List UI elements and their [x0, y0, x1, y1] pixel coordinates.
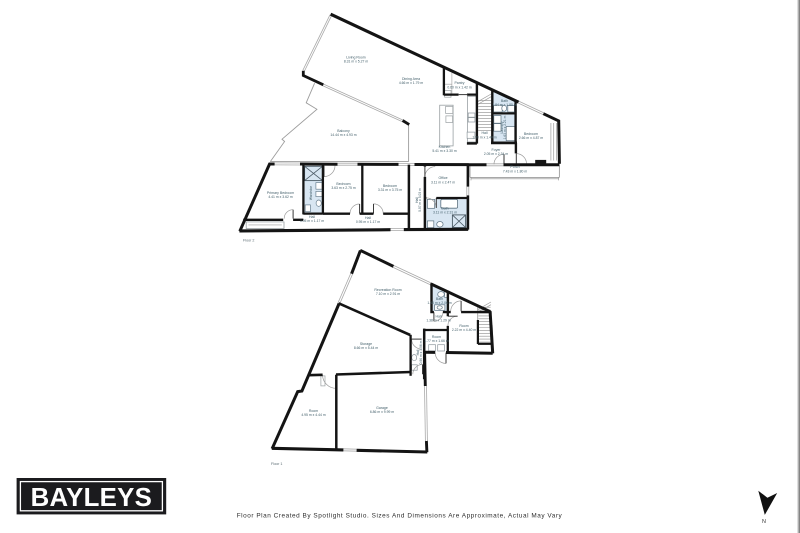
svg-text:8.31 m x 5.27 m: 8.31 m x 5.27 m [344, 60, 368, 64]
svg-text:3.11 m x 2.31 m: 3.11 m x 2.31 m [433, 211, 457, 215]
svg-text:3.05 m x 1.17 m: 3.05 m x 1.17 m [300, 219, 324, 223]
svg-text:3.31 m x 3.75 m: 3.31 m x 3.75 m [378, 188, 402, 192]
svg-text:14.44 m x 4.93 m: 14.44 m x 4.93 m [330, 133, 356, 137]
svg-text:2.66 m x 4.87 m: 2.66 m x 4.87 m [519, 136, 543, 140]
svg-text:1.77 m x 1.66 m: 1.77 m x 1.66 m [424, 339, 448, 343]
svg-text:8.66 m x 5.44 m: 8.66 m x 5.44 m [354, 346, 378, 350]
svg-text:1.84 m x 1.85 m: 1.84 m x 1.85 m [492, 103, 516, 107]
svg-text:3.11 m x 2.47 m: 3.11 m x 2.47 m [431, 180, 455, 184]
svg-text:N: N [762, 519, 766, 525]
svg-text:2.22 m x 4.40 m: 2.22 m x 4.40 m [452, 328, 476, 332]
svg-text:2.05 m x 2.34 m: 2.05 m x 2.34 m [484, 152, 508, 156]
svg-text:3.63 m x 2.75 m: 3.63 m x 2.75 m [331, 186, 355, 190]
svg-text:5.41 m x 3.30 m: 5.41 m x 3.30 m [432, 149, 456, 153]
svg-text:1.50 m x 1.44 m: 1.50 m x 1.44 m [472, 135, 496, 139]
svg-text:1.38 m x 1.29 m: 1.38 m x 1.29 m [426, 319, 450, 323]
svg-text:Wardrobe: Wardrobe [309, 186, 313, 201]
svg-text:4.95 m x 4.44 m: 4.95 m x 4.44 m [301, 413, 325, 417]
svg-text:7.10 m x 2.91 m: 7.10 m x 2.91 m [376, 292, 400, 296]
svg-text:0.96 m x 3.96 m: 0.96 m x 3.96 m [419, 340, 423, 364]
svg-text:Floor 2: Floor 2 [243, 239, 254, 243]
svg-text:4.66 m x 1.79 m: 4.66 m x 1.79 m [399, 81, 423, 85]
svg-text:1.48 m x 2.06 m: 1.48 m x 2.06 m [427, 301, 451, 305]
svg-text:0.95 m x 1.17 m: 0.95 m x 1.17 m [356, 220, 380, 224]
svg-text:0.60 m x 1.42 m: 0.60 m x 1.42 m [447, 85, 471, 89]
svg-text:4.41 m x 3.62 m: 4.41 m x 3.62 m [268, 195, 292, 199]
svg-text:BAYLEYS: BAYLEYS [31, 484, 153, 512]
svg-text:Floor Plan Created By Spotligh: Floor Plan Created By Spotlight Studio. … [237, 512, 563, 519]
svg-text:7.43 m x 1.80 m: 7.43 m x 1.80 m [503, 169, 527, 173]
svg-text:0.97 m x 5.03 m: 0.97 m x 5.03 m [418, 188, 422, 212]
svg-text:1.63 m x 2.21 m: 1.63 m x 2.21 m [503, 115, 507, 139]
svg-text:6.86 m x 9.99 m: 6.86 m x 9.99 m [370, 410, 394, 414]
svg-text:Floor 1: Floor 1 [271, 462, 282, 466]
